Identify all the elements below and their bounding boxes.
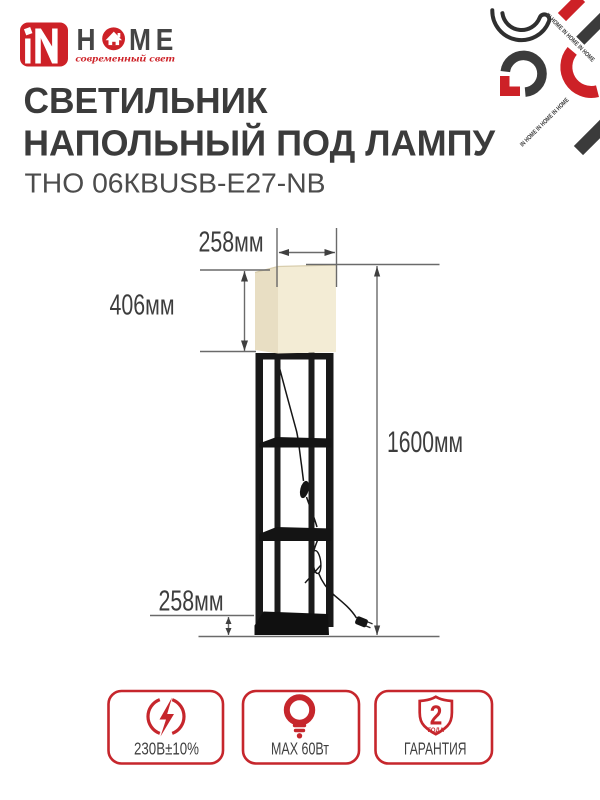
svg-text:E: E xyxy=(156,23,174,57)
svg-text:MAX 60Вт: MAX 60Вт xyxy=(271,739,329,759)
svg-text:406мм: 406мм xyxy=(110,290,175,322)
svg-text:НАПОЛЬНЫЙ ПОД ЛАМПУ: НАПОЛЬНЫЙ ПОД ЛАМПУ xyxy=(23,122,496,164)
svg-text:современный свет: современный свет xyxy=(76,54,176,65)
svg-text:230В±10%: 230В±10% xyxy=(134,739,199,759)
svg-text:ГОДА: ГОДА xyxy=(428,727,445,734)
svg-text:M: M xyxy=(129,23,151,57)
svg-text:ТНО 06КBUSB-E27-NB: ТНО 06КBUSB-E27-NB xyxy=(25,168,326,199)
svg-text:H: H xyxy=(77,23,96,57)
svg-text:1600мм: 1600мм xyxy=(387,426,463,459)
svg-text:258мм: 258мм xyxy=(159,586,224,618)
svg-text:258мм: 258мм xyxy=(199,227,264,259)
svg-text:IN HOME IN HOME IN HOME: IN HOME IN HOME IN HOME xyxy=(519,96,571,148)
svg-text:ГАРАНТИЯ: ГАРАНТИЯ xyxy=(404,739,467,759)
svg-text:СВЕТИЛЬНИК: СВЕТИЛЬНИК xyxy=(24,80,269,121)
